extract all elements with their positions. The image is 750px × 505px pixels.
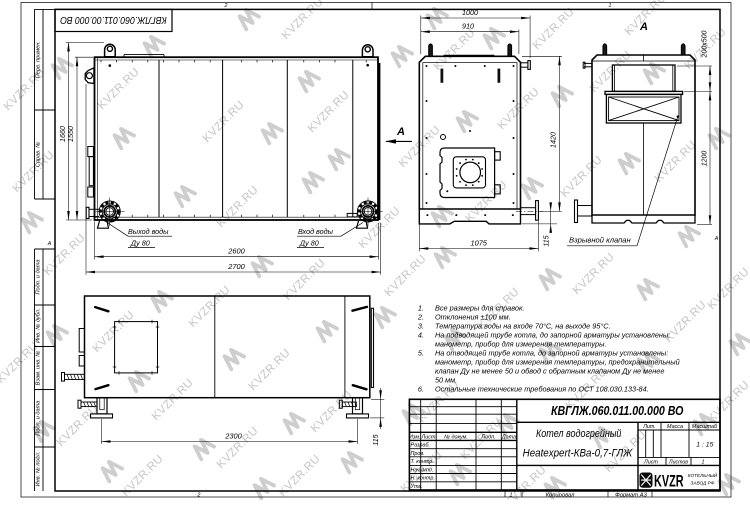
svg-text:Копировал: Копировал <box>546 493 576 499</box>
svg-text:На подводящей трубе котла, до: На подводящей трубе котла, до запорной а… <box>435 331 670 340</box>
svg-text:1: 1 <box>702 459 705 465</box>
svg-text:Отклонения ±100 мм.: Отклонения ±100 мм. <box>435 313 511 322</box>
svg-text:2: 2 <box>197 493 201 499</box>
svg-text:3.: 3. <box>418 322 424 331</box>
svg-text:KVZR: KVZR <box>654 472 684 491</box>
svg-text:Остальные технические требован: Остальные технические требования по ОСТ … <box>435 385 649 394</box>
svg-text:2: 2 <box>224 3 228 9</box>
svg-text:Формат А3: Формат А3 <box>615 493 647 499</box>
svg-text:1000: 1000 <box>462 8 478 17</box>
svg-text:1: 1 <box>510 493 513 499</box>
svg-text:910: 910 <box>462 22 474 31</box>
svg-text:А: А <box>714 236 719 242</box>
svg-text:Выход воды: Выход воды <box>128 227 169 236</box>
svg-text:Лист: Лист <box>643 459 658 465</box>
svg-text:Heatexpert-КВа-0,7-ГЛЖ: Heatexpert-КВа-0,7-ГЛЖ <box>523 447 633 459</box>
svg-text:1 : 15: 1 : 15 <box>696 441 713 448</box>
svg-text:Т. контр.: Т. контр. <box>411 459 434 465</box>
svg-text:1075: 1075 <box>470 238 487 247</box>
svg-text:5.: 5. <box>418 349 424 358</box>
svg-text:1.: 1. <box>418 304 424 313</box>
svg-text:ЗАВОД РФ: ЗАВОД РФ <box>691 481 715 486</box>
svg-text:115: 115 <box>543 235 550 246</box>
svg-text:№ докум.: № докум. <box>444 435 468 441</box>
svg-text:1550: 1550 <box>66 126 75 142</box>
svg-text:Масса: Масса <box>667 424 683 430</box>
svg-text:200х500: 200х500 <box>702 30 709 58</box>
svg-text:Котел водогрейный: Котел водогрейный <box>536 428 622 440</box>
svg-text:Пров.: Пров. <box>411 451 425 457</box>
svg-text:2700: 2700 <box>227 262 245 271</box>
svg-text:Вход воды: Вход воды <box>298 227 334 236</box>
svg-text:Инв. № дубл.: Инв. № дубл. <box>36 308 42 342</box>
svg-text:Температура воды на входе 70°С: Температура воды на входе 70°С, на выход… <box>435 322 611 331</box>
svg-text:Подп. и дата: Подп. и дата <box>36 259 42 294</box>
svg-text:115: 115 <box>373 434 380 445</box>
svg-text:Взрывной клапан: Взрывной клапан <box>569 236 632 245</box>
svg-text:Утв.: Утв. <box>410 484 423 490</box>
svg-text:Н. контр.: Н. контр. <box>411 476 435 482</box>
svg-text:Листов: Листов <box>668 459 688 465</box>
svg-text:1200: 1200 <box>702 151 709 167</box>
svg-text:КВГЛЖ.060.011.00.000 ВО: КВГЛЖ.060.011.00.000 ВО <box>60 14 167 26</box>
svg-text:На отводящей трубе котла, до з: На отводящей трубе котла, до запорной ар… <box>435 349 668 358</box>
svg-text:2.: 2. <box>417 313 424 322</box>
svg-text:КВГЛЖ.060.011.00.000 ВО: КВГЛЖ.060.011.00.000 ВО <box>551 403 684 418</box>
svg-text:50 мм.: 50 мм. <box>435 376 457 385</box>
svg-text:Дата: Дата <box>501 435 516 441</box>
svg-text:Взам. инв. №: Взам. инв. № <box>36 351 42 386</box>
svg-text:Масштаб: Масштаб <box>692 424 718 430</box>
svg-text:Ду 80: Ду 80 <box>299 239 319 248</box>
svg-text:Ду 80: Ду 80 <box>130 239 150 248</box>
svg-text:А: А <box>639 21 648 33</box>
svg-text:Разраб.: Разраб. <box>411 443 431 449</box>
svg-text:Изм.: Изм. <box>409 435 421 441</box>
svg-text:4.: 4. <box>418 331 424 340</box>
svg-text:клапан Ду не менее 50 и обвод: клапан Ду не менее 50 и обвод с обратным… <box>435 367 664 376</box>
svg-text:Подп. и дата: Подп. и дата <box>36 401 42 436</box>
svg-text:Нач.отд.: Нач.отд. <box>411 467 434 473</box>
svg-text:Лист: Лист <box>421 435 436 441</box>
svg-text:6.: 6. <box>418 385 424 394</box>
svg-text:Все размеры для справок.: Все размеры для справок. <box>435 304 524 313</box>
svg-text:Инв. № подл.: Инв. № подл. <box>36 452 42 487</box>
svg-text:Подп.: Подп. <box>481 435 495 441</box>
svg-text:Лит.: Лит. <box>642 424 656 430</box>
svg-text:Справ. №: Справ. № <box>36 142 42 167</box>
svg-text:манометр, прибор для измерения: манометр, прибор для измерения температу… <box>435 340 607 349</box>
svg-text:Перв. примен.: Перв. примен. <box>36 41 42 78</box>
svg-text:КОТЕЛЬНЫЙ: КОТЕЛЬНЫЙ <box>688 471 718 478</box>
svg-text:1: 1 <box>609 3 612 9</box>
svg-text:2300: 2300 <box>224 431 242 440</box>
svg-text:манометр, прибор для измерения: манометр, прибор для измерения температу… <box>435 358 680 367</box>
svg-text:1420: 1420 <box>548 132 557 148</box>
svg-text:А: А <box>396 126 405 138</box>
svg-text:2600: 2600 <box>227 247 245 256</box>
svg-text:А: А <box>47 241 52 247</box>
